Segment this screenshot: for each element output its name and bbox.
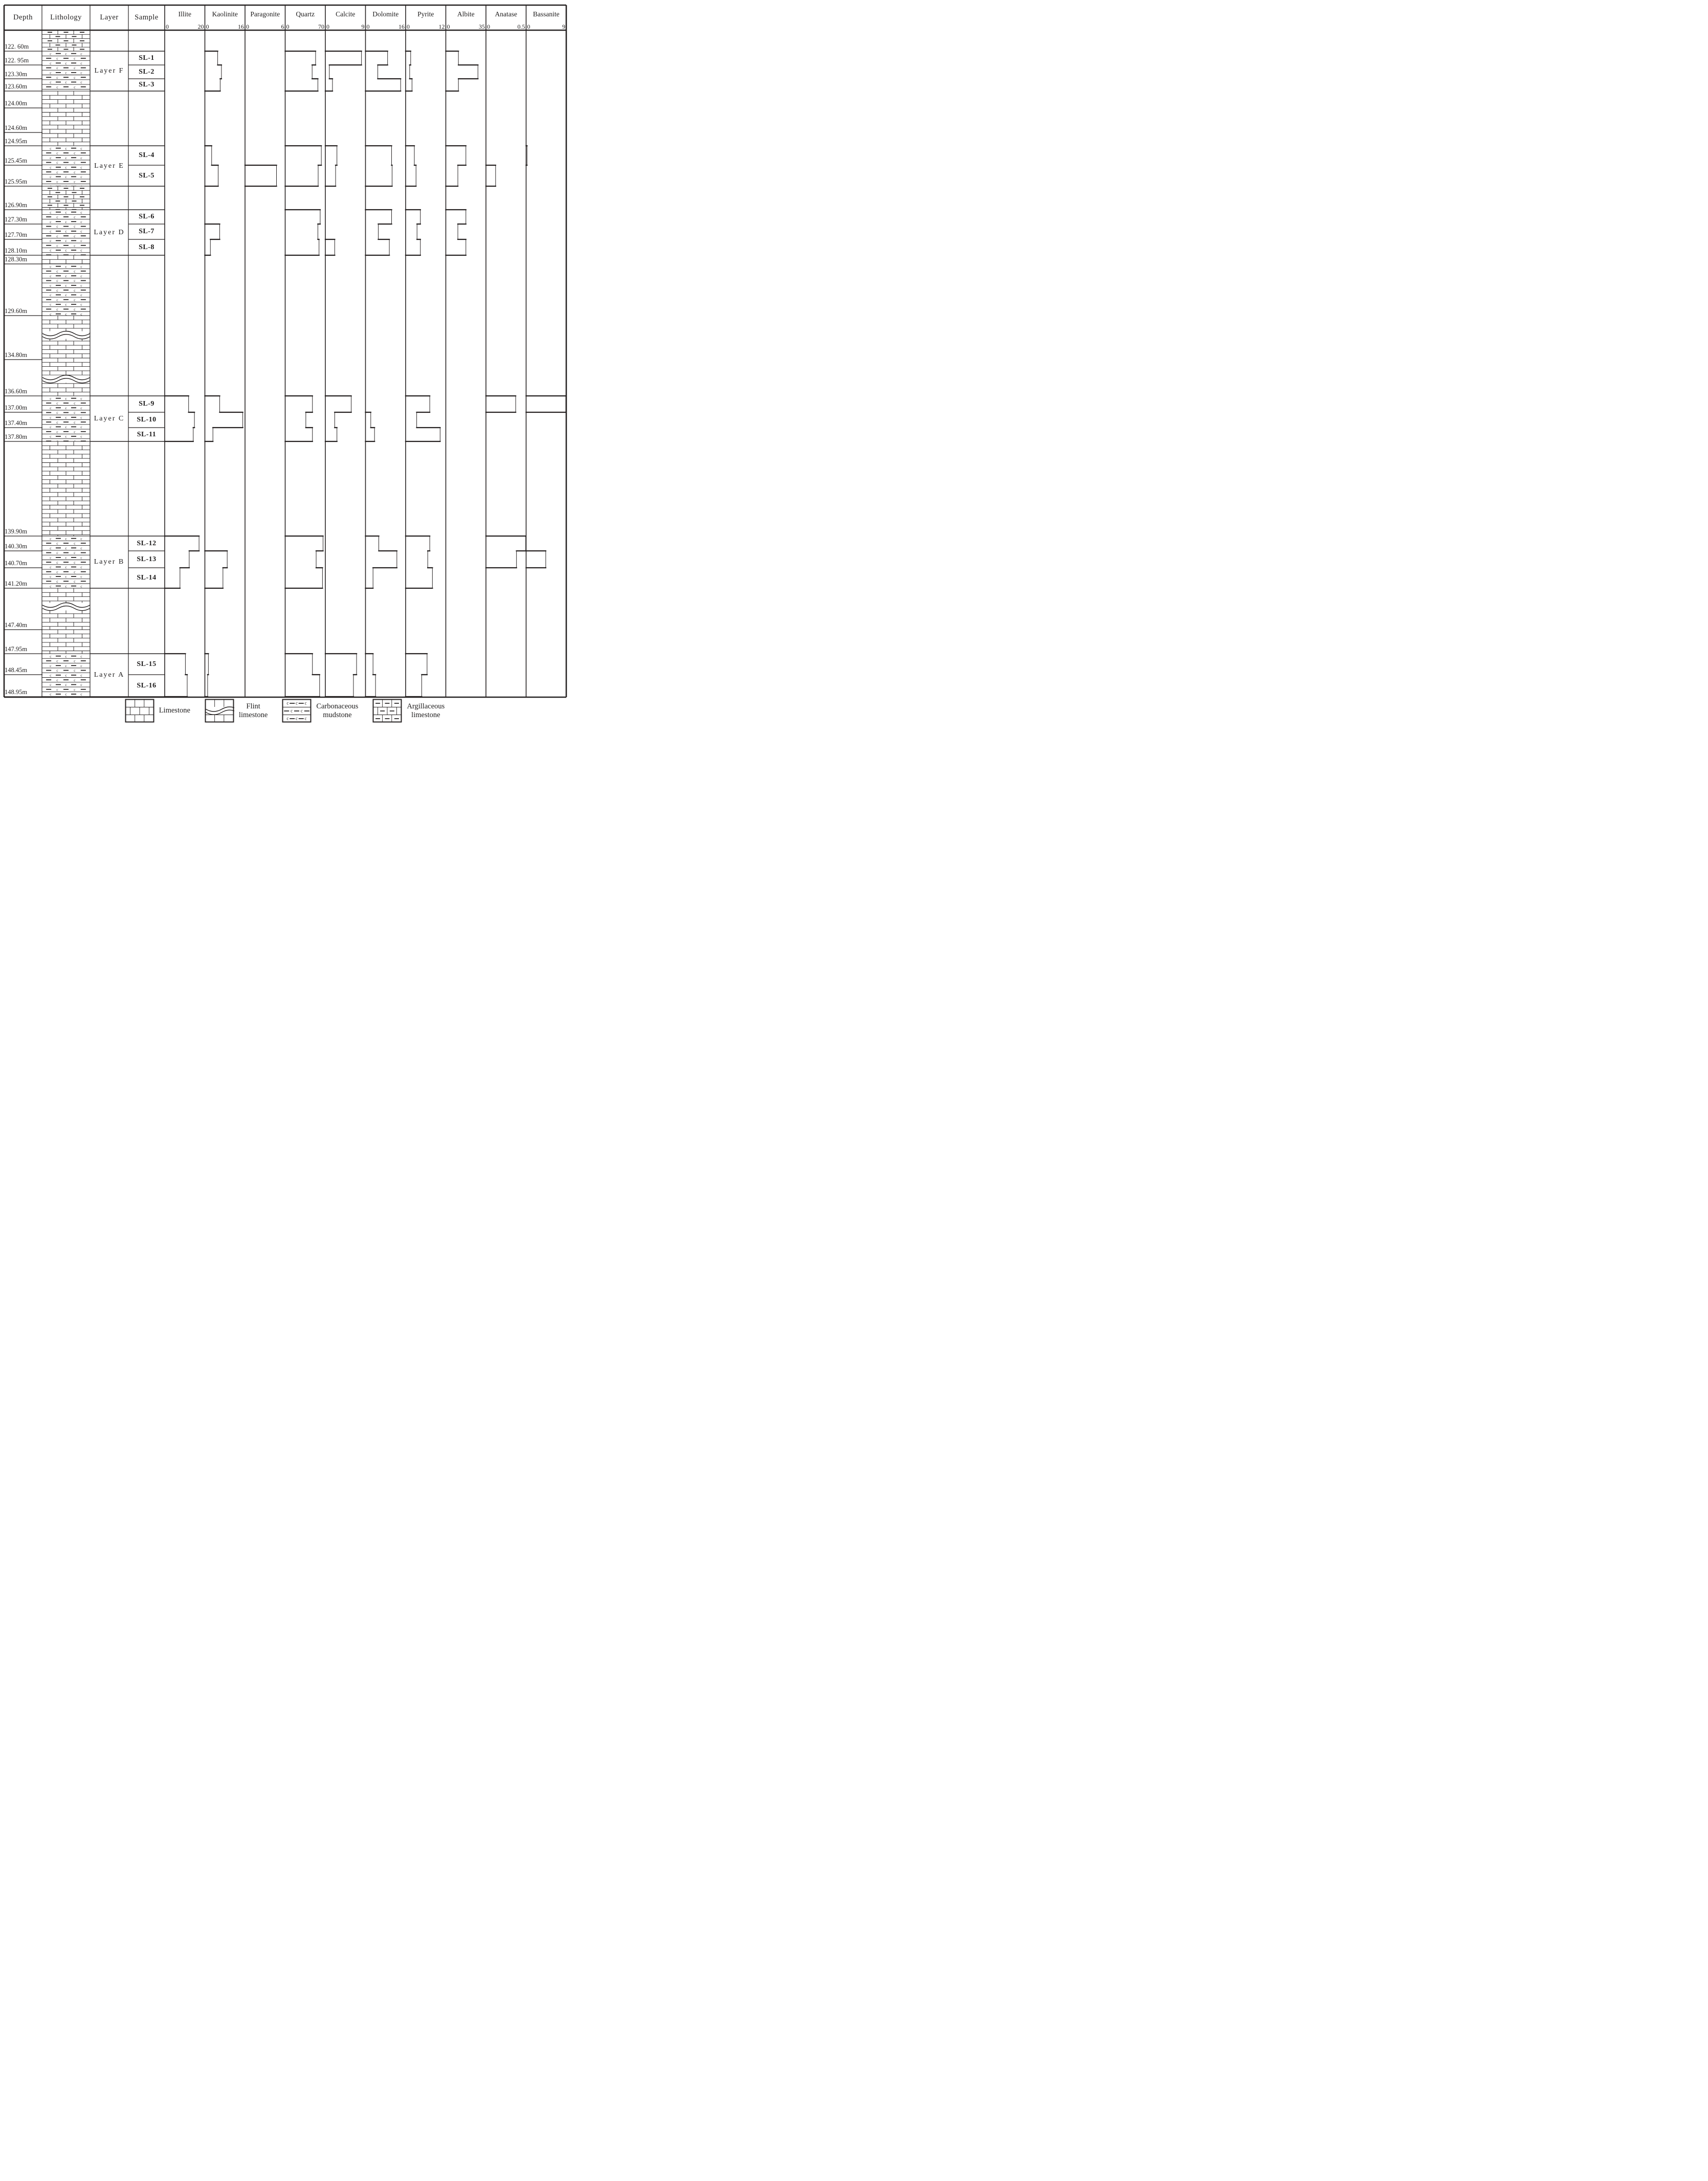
svg-text:c: c — [50, 396, 52, 400]
profile-illite — [165, 536, 199, 588]
depth-tick-label: 137.80m — [5, 433, 41, 441]
mineral-scale: 09 — [526, 24, 567, 30]
sample-header-label: Sample — [135, 13, 159, 22]
legend-label: Flintlimestone — [239, 702, 268, 719]
mineral-scale: 070 — [285, 24, 326, 30]
profile-kaolinite — [205, 224, 220, 255]
svg-text:c: c — [50, 174, 52, 179]
svg-text:c: c — [50, 274, 52, 278]
svg-text:c: c — [56, 307, 58, 311]
legend-label-line: Limestone — [159, 706, 190, 715]
depth-tick-label: 141.20m — [5, 580, 41, 588]
scale-min: 0 — [447, 24, 450, 30]
depth-tick-label: 136.60m — [5, 388, 41, 395]
svg-text:c: c — [74, 224, 76, 229]
profile-pyrite — [406, 51, 412, 91]
svg-text:c: c — [56, 550, 58, 555]
svg-text:c: c — [65, 692, 67, 697]
svg-text:c: c — [80, 238, 82, 243]
profile-albite — [446, 51, 478, 91]
svg-text:c: c — [56, 65, 58, 70]
depth-tick-label: 125.95m — [5, 178, 41, 186]
svg-text:c: c — [56, 224, 58, 229]
svg-text:c: c — [50, 302, 52, 307]
mineral-scale: 012 — [406, 24, 446, 30]
depth-tick-label: 128.10m — [5, 247, 41, 255]
scale-min: 0 — [487, 24, 490, 30]
scale-max: 16 — [238, 24, 244, 30]
legend-label-line: mudstone — [316, 711, 358, 719]
mineral-name: Anatase — [486, 5, 526, 24]
depth-tick-label: 124.60m — [5, 124, 41, 132]
scale-max: 12 — [439, 24, 445, 30]
svg-text:c: c — [65, 146, 67, 150]
svg-text:c: c — [50, 663, 52, 668]
profile-illite — [165, 654, 187, 697]
lithology-interval-flint — [42, 588, 90, 630]
svg-text:c: c — [74, 215, 76, 219]
lithology-interval-flint — [42, 316, 90, 396]
lithology-interval-limestone — [42, 91, 90, 146]
profile-pyrite — [406, 654, 427, 697]
svg-text:c: c — [50, 146, 52, 150]
svg-text:c: c — [80, 682, 82, 687]
depth-tick-label: 129.60m — [5, 307, 41, 315]
scale-min: 0 — [367, 24, 370, 30]
svg-text:c: c — [50, 584, 52, 588]
profile-quartz — [285, 51, 318, 91]
svg-text:c: c — [305, 701, 307, 706]
svg-text:c: c — [50, 80, 52, 84]
sample-label: SL-13 — [128, 551, 165, 568]
svg-text:c: c — [80, 264, 82, 269]
sample-label: SL-7 — [128, 224, 165, 239]
depth-tick-label: 123.30m — [5, 71, 41, 78]
svg-text:c: c — [65, 80, 67, 84]
scale-min: 0 — [286, 24, 290, 30]
svg-text:c: c — [80, 248, 82, 253]
svg-text:c: c — [56, 579, 58, 584]
svg-text:c: c — [65, 229, 67, 233]
svg-text:c: c — [50, 425, 52, 429]
svg-text:c: c — [50, 155, 52, 160]
layer-label: Layer C — [90, 396, 128, 441]
mineral-name: Quartz — [285, 5, 326, 24]
sample-label: SL-3 — [128, 79, 165, 91]
svg-text:c: c — [80, 406, 82, 410]
svg-text:c: c — [74, 550, 76, 555]
lithology-interval-limestone — [42, 441, 90, 536]
svg-text:c: c — [65, 210, 67, 214]
svg-text:c: c — [65, 283, 67, 287]
svg-text:c: c — [65, 546, 67, 550]
svg-text:c: c — [80, 574, 82, 579]
svg-text:c: c — [80, 415, 82, 419]
svg-text:c: c — [74, 410, 76, 415]
layer-label: Layer A — [90, 654, 128, 697]
svg-text:c: c — [74, 84, 76, 89]
profile-anatase — [486, 396, 516, 412]
svg-text:c: c — [56, 170, 58, 174]
svg-text:c: c — [80, 293, 82, 297]
lithology-header-label: Lithology — [50, 13, 82, 22]
svg-text:c: c — [50, 536, 52, 541]
svg-text:c: c — [80, 90, 82, 94]
svg-text:c: c — [80, 425, 82, 429]
mineral-name: Bassanite — [526, 5, 567, 24]
mineral-column-header: Paragonite06 — [245, 5, 285, 30]
svg-text:c: c — [65, 555, 67, 560]
svg-text:c: c — [56, 668, 58, 673]
svg-text:c: c — [56, 269, 58, 274]
svg-text:c: c — [56, 75, 58, 80]
svg-text:c: c — [74, 243, 76, 248]
svg-text:c: c — [74, 560, 76, 565]
svg-text:c: c — [56, 151, 58, 155]
svg-text:c: c — [50, 238, 52, 243]
mineral-name: Calcite — [325, 5, 366, 24]
lithology-interval-carbonaceous: cccccccccccccccccccccccccccc — [42, 264, 90, 316]
svg-text:c: c — [291, 708, 293, 714]
svg-text:c: c — [56, 569, 58, 574]
scale-max: 16 — [398, 24, 405, 30]
svg-text:c: c — [80, 61, 82, 65]
svg-text:c: c — [287, 701, 289, 706]
profile-bassanite — [526, 396, 566, 412]
svg-text:c: c — [56, 401, 58, 406]
mineral-column-header: Dolomite016 — [366, 5, 406, 30]
depth-tick-label: 147.95m — [5, 646, 41, 653]
svg-text:c: c — [50, 692, 52, 697]
sample-label: SL-10 — [128, 412, 165, 428]
svg-text:c: c — [50, 406, 52, 410]
scale-max: 9 — [562, 24, 565, 30]
svg-text:c: c — [50, 546, 52, 550]
legend-label-line: limestone — [407, 711, 445, 719]
legend-swatch-limestone-icon — [125, 699, 154, 723]
mineral-scale: 00.5 — [486, 24, 526, 30]
svg-text:c: c — [80, 546, 82, 550]
svg-text:c: c — [65, 415, 67, 419]
profile-quartz — [285, 536, 323, 588]
svg-text:c: c — [74, 179, 76, 184]
svg-text:c: c — [65, 673, 67, 677]
svg-text:c: c — [56, 560, 58, 565]
svg-text:c: c — [50, 682, 52, 687]
svg-text:c: c — [80, 692, 82, 697]
sample-label: SL-11 — [128, 428, 165, 441]
svg-text:c: c — [80, 673, 82, 677]
legend-item: Limestone — [125, 699, 190, 723]
svg-text:c: c — [50, 574, 52, 579]
svg-text:c: c — [50, 51, 52, 56]
profile-bassanite — [526, 551, 546, 568]
svg-text:c: c — [56, 420, 58, 425]
sample-label: SL-8 — [128, 239, 165, 255]
depth-tick-label: 128.30m — [5, 256, 41, 263]
lithology-interval-carbonaceous: ccccccccccccccccccccccc — [42, 146, 90, 188]
svg-text:c: c — [56, 659, 58, 663]
profile-dolomite — [366, 536, 397, 588]
svg-text:c: c — [65, 682, 67, 687]
svg-text:c: c — [74, 659, 76, 663]
profile-pyrite — [406, 396, 440, 441]
profile-illite — [165, 396, 194, 441]
svg-text:c: c — [80, 51, 82, 56]
scale-min: 0 — [527, 24, 530, 30]
svg-text:c: c — [56, 84, 58, 89]
depth-tick-label: 140.30m — [5, 543, 41, 550]
svg-text:c: c — [50, 248, 52, 253]
svg-text:c: c — [65, 61, 67, 65]
svg-text:c: c — [65, 425, 67, 429]
svg-text:c: c — [50, 293, 52, 297]
depth-tick-label: 148.95m — [5, 688, 41, 696]
layer-label: Layer F — [90, 51, 128, 91]
depth-tick-label: 137.40m — [5, 419, 41, 427]
profile-kaolinite — [205, 396, 243, 441]
profile-albite — [446, 210, 466, 255]
mineral-scale: 035 — [446, 24, 486, 30]
lithology-interval-carbonaceous: cccccccccccccccccccccccccccc — [42, 536, 90, 588]
depth-tick-label: 122. 95m — [5, 57, 41, 64]
legend-swatch-flint-icon — [205, 699, 234, 723]
svg-text:c: c — [50, 61, 52, 65]
svg-text:c: c — [65, 219, 67, 224]
profile-pyrite — [406, 536, 432, 588]
depth-tick-label: 124.00m — [5, 100, 41, 107]
profile-calcite — [325, 654, 357, 697]
mineral-column-header: Calcite09 — [325, 5, 366, 30]
mineral-column-header: Albite035 — [446, 5, 486, 30]
svg-text:c: c — [56, 179, 58, 184]
layer-label: Layer E — [90, 146, 128, 186]
sample-label: SL-2 — [128, 65, 165, 79]
svg-text:c: c — [56, 243, 58, 248]
legend-label: Argillaceouslimestone — [407, 702, 445, 719]
profile-dolomite — [366, 146, 392, 186]
svg-text:c: c — [65, 264, 67, 269]
svg-text:c: c — [74, 234, 76, 238]
svg-text:c: c — [80, 165, 82, 169]
svg-text:c: c — [74, 56, 76, 61]
depth-tick-label: 127.70m — [5, 231, 41, 239]
depth-tick-label: 125.45m — [5, 157, 41, 165]
svg-text:c: c — [80, 565, 82, 569]
depth-tick-label: 124.95m — [5, 138, 41, 145]
svg-text:c: c — [80, 70, 82, 75]
svg-text:c: c — [74, 579, 76, 584]
sample-label: SL-1 — [128, 51, 165, 65]
lithology-interval-limestone — [42, 630, 90, 654]
profile-calcite — [325, 239, 335, 255]
svg-text:c: c — [65, 238, 67, 243]
profile-anatase — [486, 165, 496, 186]
sample-label: SL-5 — [128, 165, 165, 186]
lithology-interval-argillaceous — [42, 186, 90, 210]
depth-tick-label: 140.70m — [5, 560, 41, 567]
profile-dolomite — [366, 51, 401, 91]
svg-text:c: c — [80, 396, 82, 400]
svg-text:c: c — [50, 165, 52, 169]
profile-quartz — [285, 654, 320, 697]
svg-text:c: c — [74, 541, 76, 546]
svg-text:c: c — [65, 90, 67, 94]
sample-label: SL-16 — [128, 675, 165, 697]
mineral-column-header: Pyrite012 — [406, 5, 446, 30]
svg-text:c: c — [80, 174, 82, 179]
svg-text:c: c — [65, 165, 67, 169]
sample-label: SL-15 — [128, 654, 165, 675]
svg-text:c: c — [56, 278, 58, 283]
sample-label: SL-14 — [128, 568, 165, 588]
mineral-scale: 09 — [325, 24, 366, 30]
svg-text:c: c — [80, 146, 82, 150]
svg-text:c: c — [50, 283, 52, 287]
svg-text:c: c — [74, 170, 76, 174]
svg-text:c: c — [74, 288, 76, 293]
svg-text:c: c — [74, 75, 76, 80]
svg-text:c: c — [74, 160, 76, 165]
scale-min: 0 — [206, 24, 209, 30]
svg-text:c: c — [301, 708, 303, 714]
legend-label: Carbonaceousmudstone — [316, 702, 358, 719]
svg-text:c: c — [74, 65, 76, 70]
svg-text:c: c — [305, 716, 307, 721]
svg-text:c: c — [80, 555, 82, 560]
svg-text:c: c — [56, 541, 58, 546]
svg-text:c: c — [65, 274, 67, 278]
svg-text:c: c — [50, 415, 52, 419]
depth-tick-label: 126.90m — [5, 202, 41, 209]
svg-text:c: c — [74, 429, 76, 434]
svg-text:c: c — [74, 278, 76, 283]
mineral-scale: 016 — [205, 24, 246, 30]
svg-text:c: c — [65, 248, 67, 253]
layer-header-label: Layer — [100, 13, 118, 22]
scale-min: 0 — [326, 24, 329, 30]
svg-text:c: c — [56, 678, 58, 682]
scale-max: 6 — [281, 24, 284, 30]
sample-label: SL-4 — [128, 146, 165, 165]
lithology-interval-carbonaceous: ccccccccccccccccccccccc — [42, 51, 90, 94]
mineral-column-header: Kaolinite016 — [205, 5, 246, 30]
mineral-name: Illite — [165, 5, 205, 24]
svg-text:c: c — [287, 716, 289, 721]
legend-item: Argillaceouslimestone — [372, 699, 445, 723]
depth-tick-label: 123.60m — [5, 83, 41, 91]
svg-text:c: c — [65, 70, 67, 75]
svg-text:c: c — [80, 584, 82, 588]
legend-label-line: Carbonaceous — [316, 702, 358, 710]
svg-text:c: c — [65, 434, 67, 439]
mineral-name: Paragonite — [245, 5, 285, 24]
scale-max: 35 — [479, 24, 485, 30]
svg-text:c: c — [65, 565, 67, 569]
profile-calcite — [325, 146, 337, 186]
profile-kaolinite — [205, 51, 221, 91]
svg-text:c: c — [80, 654, 82, 658]
sample-label: SL-6 — [128, 210, 165, 224]
svg-text:c: c — [56, 56, 58, 61]
svg-text:c: c — [50, 673, 52, 677]
profile-calcite — [325, 396, 351, 441]
scale-max: 70 — [318, 24, 324, 30]
mineral-name: Dolomite — [366, 5, 406, 24]
scale-max: 20 — [198, 24, 204, 30]
svg-text:c: c — [296, 701, 298, 706]
svg-text:c: c — [50, 654, 52, 658]
scale-min: 0 — [246, 24, 249, 30]
legend-label: Limestone — [159, 706, 190, 715]
depth-tick-label: 122. 60m — [5, 43, 41, 51]
svg-text:c: c — [56, 234, 58, 238]
svg-text:c: c — [50, 210, 52, 214]
lithology-interval-argillaceous — [42, 30, 90, 51]
depth-column-header: Depth — [4, 5, 42, 30]
depth-tick-label: 148.45m — [5, 666, 41, 674]
svg-text:c: c — [50, 70, 52, 75]
legend-item: Flintlimestone — [205, 699, 268, 723]
profile-kaolinite — [205, 654, 209, 697]
lithology-interval-carbonaceous: ccccccccccccccccccccccccc — [42, 654, 90, 701]
scale-min: 0 — [407, 24, 410, 30]
svg-text:c: c — [65, 51, 67, 56]
svg-text:c: c — [80, 210, 82, 214]
profile-calcite — [325, 51, 362, 91]
scale-max: 0.5 — [518, 24, 525, 30]
mineral-name: Kaolinite — [205, 5, 246, 24]
svg-text:c: c — [56, 297, 58, 302]
profile-dolomite — [366, 210, 392, 255]
profile-albite — [446, 146, 466, 186]
depth-tick-label: 147.40m — [5, 621, 41, 629]
svg-text:c: c — [65, 396, 67, 400]
svg-text:c: c — [65, 654, 67, 658]
mineral-column-header: Illite020 — [165, 5, 205, 30]
svg-text:c: c — [74, 401, 76, 406]
mineral-scale: 016 — [366, 24, 406, 30]
svg-text:c: c — [65, 302, 67, 307]
legend-swatch-argillaceous-icon — [372, 699, 402, 723]
svg-text:c: c — [50, 219, 52, 224]
lithology-column-header: Lithology — [42, 5, 90, 30]
svg-text:c: c — [56, 429, 58, 434]
svg-text:c: c — [74, 678, 76, 682]
lithology-interval-limestone — [42, 255, 90, 264]
profile-kaolinite — [205, 146, 218, 186]
mineral-column-header: Quartz070 — [285, 5, 326, 30]
profile-pyrite — [406, 146, 416, 186]
svg-text:c: c — [50, 565, 52, 569]
stratigraphic-mineralogy-chart: cccccccccccccccccccccccccccccccccccccccc… — [0, 0, 569, 729]
lithology-interval-carbonaceous: ccccccccccccccccccccccccc — [42, 396, 90, 443]
profile-quartz — [285, 396, 313, 441]
svg-text:c: c — [65, 536, 67, 541]
svg-text:c: c — [74, 687, 76, 692]
legend-label-line: Flint — [239, 702, 268, 710]
svg-text:c: c — [80, 219, 82, 224]
svg-text:c: c — [80, 80, 82, 84]
svg-text:c: c — [65, 663, 67, 668]
profile-dolomite — [366, 412, 375, 441]
mineral-name: Albite — [446, 5, 486, 24]
svg-text:c: c — [56, 215, 58, 219]
svg-text:c: c — [74, 668, 76, 673]
svg-text:c: c — [65, 574, 67, 579]
profile-paragonite — [245, 165, 276, 186]
svg-text:c: c — [65, 293, 67, 297]
